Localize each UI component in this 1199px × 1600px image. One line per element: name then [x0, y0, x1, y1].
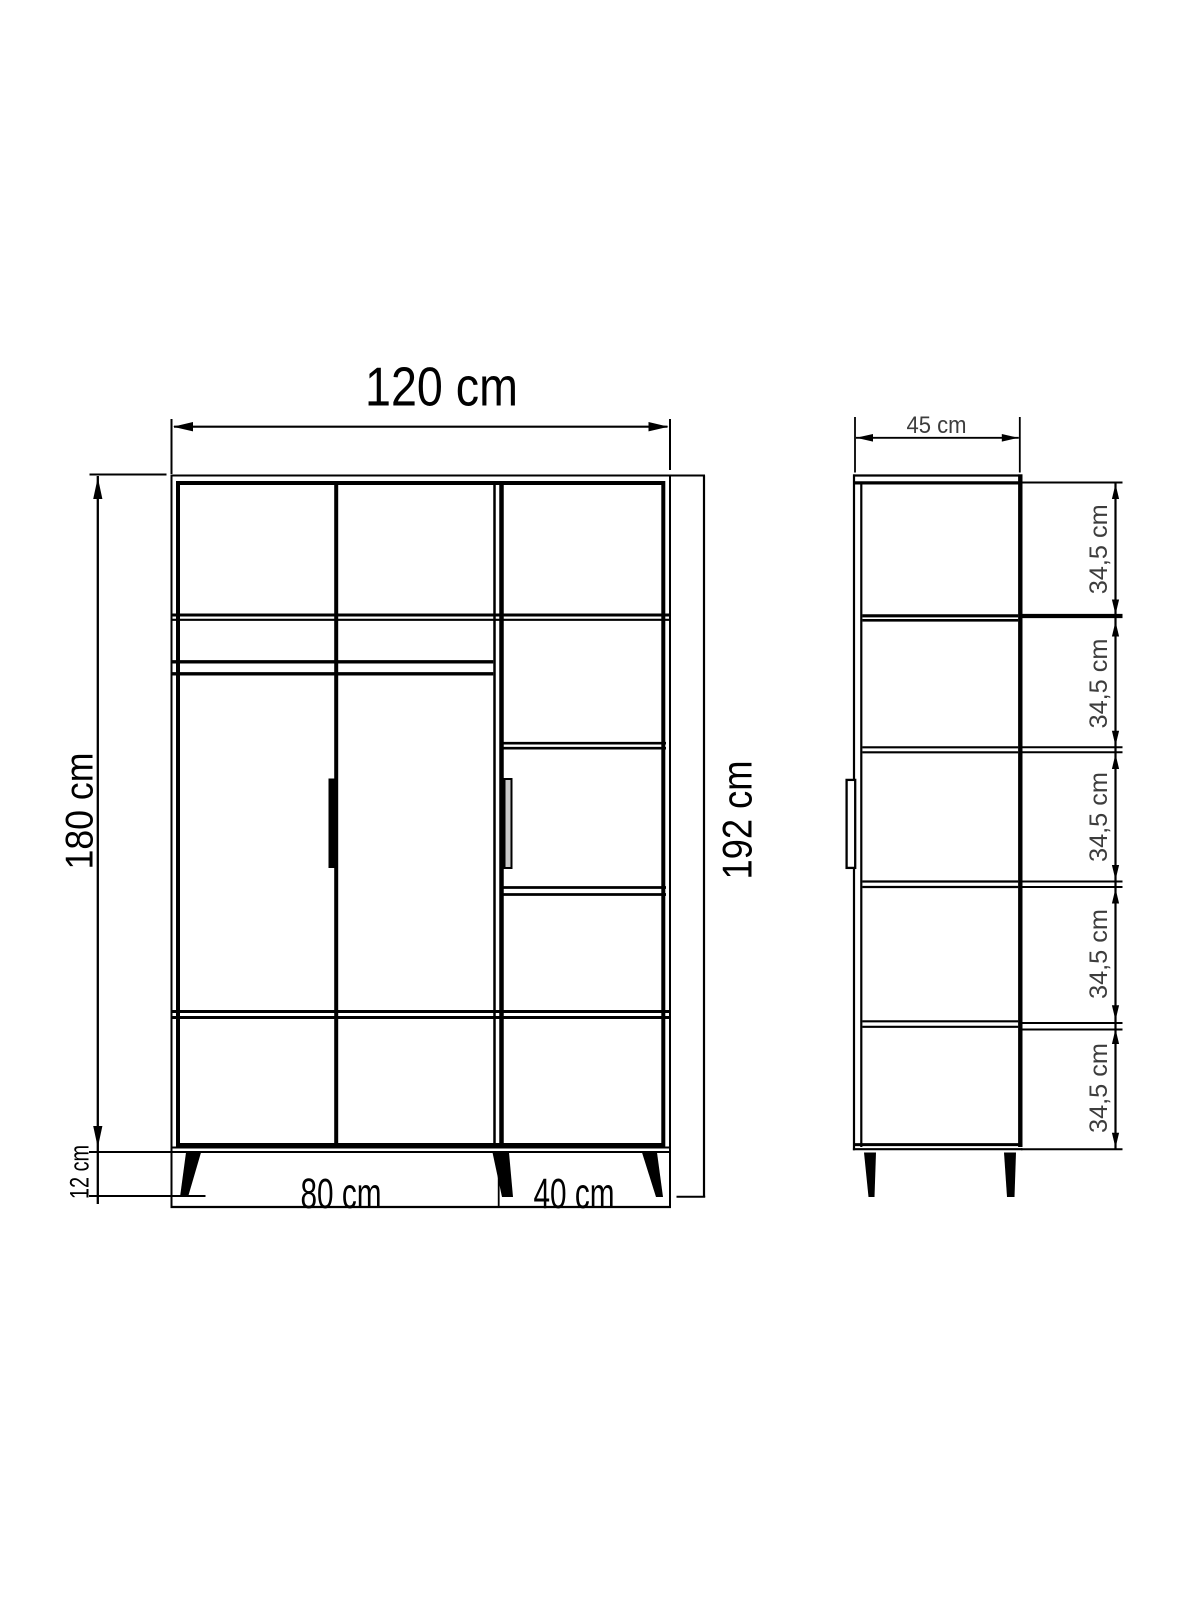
svg-text:12 cm: 12 cm: [65, 1145, 95, 1199]
svg-text:34,5 cm: 34,5 cm: [1085, 639, 1113, 729]
svg-text:40 cm: 40 cm: [534, 1170, 615, 1218]
svg-text:180 cm: 180 cm: [59, 753, 102, 870]
svg-text:34,5 cm: 34,5 cm: [1085, 909, 1113, 999]
svg-text:80 cm: 80 cm: [301, 1170, 382, 1218]
svg-text:45 cm: 45 cm: [907, 412, 967, 439]
svg-text:192 cm: 192 cm: [714, 761, 761, 880]
svg-text:34,5 cm: 34,5 cm: [1085, 772, 1113, 862]
svg-text:120 cm: 120 cm: [365, 356, 518, 418]
svg-text:34,5 cm: 34,5 cm: [1085, 1043, 1113, 1133]
svg-text:34,5 cm: 34,5 cm: [1085, 504, 1113, 594]
